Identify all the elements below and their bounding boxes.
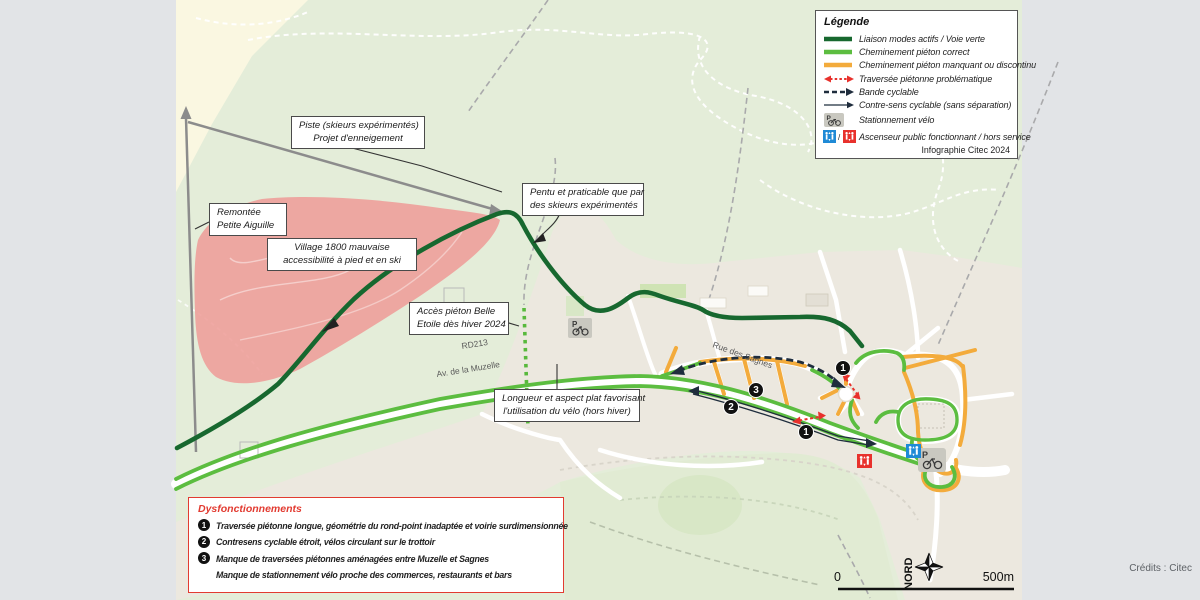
pieton-manquant-line-icon — [823, 61, 859, 69]
voie-verte-line-icon — [823, 35, 859, 43]
elevator-working-icon — [906, 444, 921, 458]
svg-text:P: P — [572, 320, 578, 329]
legend: Légende Liaison modes actifs / Voie vert… — [815, 10, 1018, 159]
legend-item-label: Ascenseur public fonctionnant / hors ser… — [859, 132, 1031, 142]
annotation-village: Village 1800 mauvaise accessibilité à pi… — [267, 238, 417, 271]
issue-number-badge — [198, 569, 210, 581]
annotation-text: Longueur et aspect plat favorisant — [502, 393, 632, 406]
bande-cyclable-dash-icon — [823, 87, 859, 97]
annotation-acces: Accès piéton Belle Etoile dès hiver 2024 — [409, 302, 509, 335]
ascenseur-icons: / — [823, 129, 859, 144]
issue-number-badge: 1 — [198, 519, 210, 531]
legend-item: P Stationnement vélo — [823, 112, 1010, 129]
issue-item: Manque de stationnement vélo proche des … — [198, 569, 554, 581]
legend-item: Cheminement piéton correct — [823, 45, 1010, 58]
issues-title: Dysfonctionnements — [198, 503, 554, 515]
annotation-remontee: Remontée Petite Aiguille — [209, 203, 287, 236]
svg-text:P: P — [922, 450, 928, 460]
annotation-text: Piste (skieurs expérimentés) — [299, 120, 417, 133]
scale-distance-label: 500m — [983, 570, 1014, 584]
map-marker-3: 3 — [748, 382, 764, 398]
issue-number-badge: 3 — [198, 552, 210, 564]
north-label: NORD — [903, 558, 915, 590]
pieton-correct-line-icon — [823, 48, 859, 56]
annotation-text: des skieurs expérimentés — [530, 200, 636, 213]
issue-text: Traversée piétonne longue, géométrie du … — [216, 519, 568, 531]
annotation-text: Pentu et praticable que par — [530, 187, 636, 200]
legend-item-label: Cheminement piéton manquant ou discontin… — [859, 60, 1036, 70]
scale-zero-label: 0 — [834, 570, 841, 584]
annotation-longueur: Longueur et aspect plat favorisant l'uti… — [494, 389, 640, 422]
issue-item: 3 Manque de traversées piétonnes aménagé… — [198, 552, 554, 564]
stationnement-velo-icon: P — [823, 112, 859, 128]
annotation-text: accessibilité à pied et en ski — [275, 255, 409, 268]
legend-item: Cheminement piéton manquant ou discontin… — [823, 59, 1010, 72]
legend-item: Contre-sens cyclable (sans séparation) — [823, 98, 1010, 111]
elevator-working-icon — [823, 130, 836, 143]
map-marker-1: 1 — [835, 360, 851, 376]
annotation-text: Accès piéton Belle — [417, 306, 501, 319]
legend-item-label: Stationnement vélo — [859, 115, 934, 125]
legend-title: Légende — [824, 16, 1010, 28]
credits-label: Crédits : Citec — [1078, 563, 1192, 574]
traversee-problematique-arrow-icon — [823, 74, 859, 84]
legend-item: Traversée piétonne problématique — [823, 72, 1010, 85]
annotation-text: Village 1800 mauvaise — [275, 242, 409, 255]
issue-number-badge: 2 — [198, 536, 210, 548]
legend-item-label: Bande cyclable — [859, 87, 919, 97]
annotation-pentu: Pentu et praticable que par des skieurs … — [522, 183, 644, 216]
annotation-text: l'utilisation du vélo (hors hiver) — [502, 406, 632, 419]
legend-item: Bande cyclable — [823, 85, 1010, 98]
legend-item-label: Cheminement piéton correct — [859, 47, 969, 57]
contre-sens-arrow-icon — [823, 100, 859, 110]
map-infographic: P P RD213 Av. de la Muzelle Rue des Sagn… — [0, 0, 1200, 600]
issues-panel: Dysfonctionnements 1 Traversée piétonne … — [188, 497, 564, 593]
legend-item-label: Contre-sens cyclable (sans séparation) — [859, 100, 1011, 110]
annotation-piste: Piste (skieurs expérimentés) Projet d'en… — [291, 116, 425, 149]
issue-text: Contresens cyclable étroit, vélos circul… — [216, 536, 435, 548]
issue-item: 2 Contresens cyclable étroit, vélos circ… — [198, 536, 554, 548]
annotation-text: Etoile dès hiver 2024 — [417, 319, 501, 332]
elevator-out-of-service-icon — [843, 130, 856, 143]
roundabout — [839, 387, 854, 402]
legend-footer: Infographie Citec 2024 — [823, 145, 1010, 155]
issue-text: Manque de traversées piétonnes aménagées… — [216, 552, 489, 564]
annotation-text: Petite Aiguille — [217, 220, 279, 233]
issue-item: 1 Traversée piétonne longue, géométrie d… — [198, 519, 554, 531]
legend-item-label: Traversée piétonne problématique — [859, 74, 992, 84]
legend-item: / Ascenseur public fonctionnant / hors s… — [823, 128, 1010, 145]
annotation-text: Projet d'enneigement — [299, 133, 417, 146]
legend-item: Liaison modes actifs / Voie verte — [823, 32, 1010, 45]
map-canvas: P P RD213 Av. de la Muzelle Rue des Sagn… — [0, 0, 1200, 600]
map-marker-1: 1 — [798, 424, 814, 440]
bike-parking-icon: P — [568, 318, 592, 338]
issue-text: Manque de stationnement vélo proche des … — [216, 569, 512, 581]
elevator-out-of-service-icon — [857, 454, 872, 468]
bike-parking-icon: P — [918, 448, 946, 472]
legend-item-label: Liaison modes actifs / Voie verte — [859, 34, 985, 44]
annotation-text: Remontée — [217, 207, 279, 220]
map-marker-2: 2 — [723, 399, 739, 415]
svg-text:/: / — [838, 133, 841, 142]
